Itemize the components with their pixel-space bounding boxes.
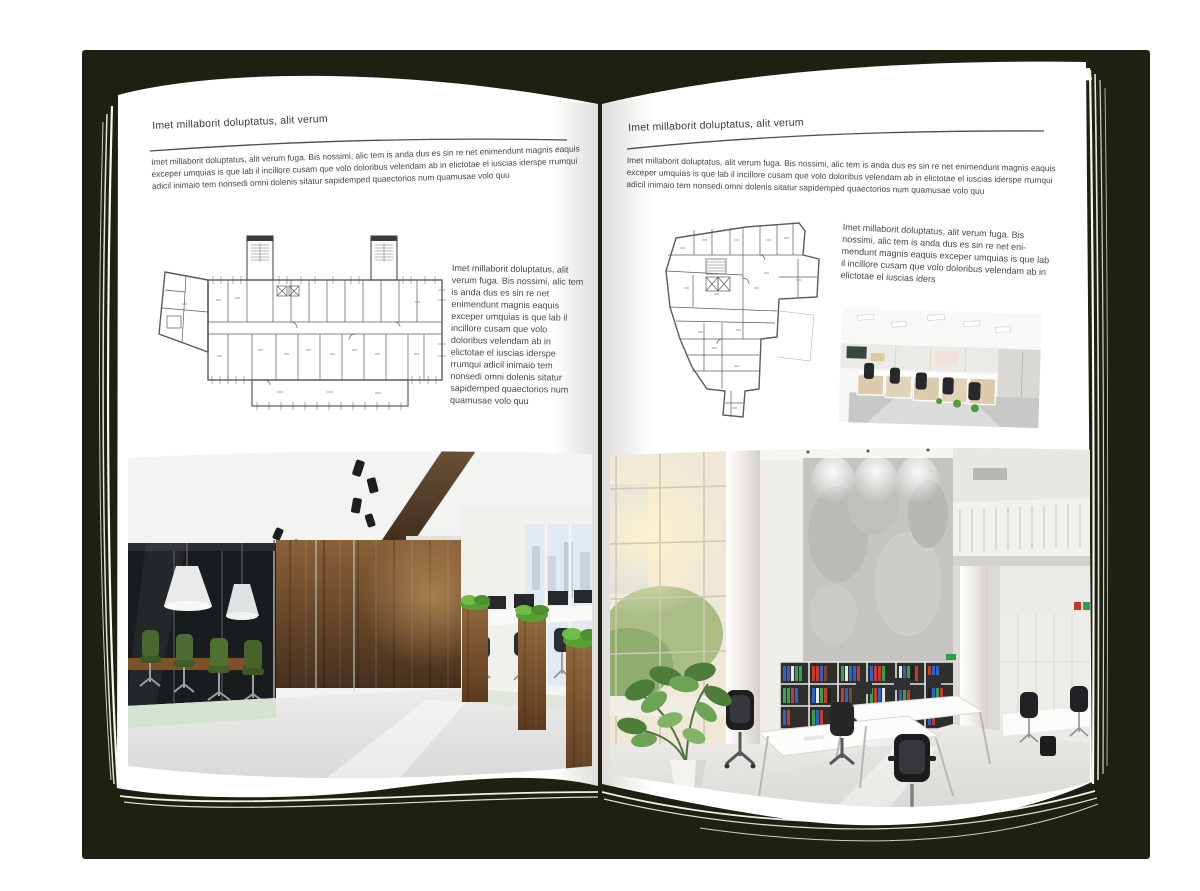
exit-sign	[946, 654, 956, 660]
page-stack-right	[1090, 70, 1108, 784]
left-floor-plan-figure	[155, 228, 457, 420]
left-office-photo	[126, 448, 594, 794]
plan-room-labels	[182, 298, 420, 393]
plan-left-wing	[159, 272, 208, 352]
safety-sign-green	[1083, 602, 1090, 610]
plan-balcony	[777, 311, 814, 361]
plan-stair-towers	[247, 236, 397, 280]
concrete-feature-wall	[803, 456, 953, 662]
ceiling-lights	[841, 308, 1042, 350]
plan-outline	[666, 223, 819, 417]
right-floor-plan-figure	[646, 218, 842, 424]
plan-main-block	[208, 280, 442, 406]
magazine-mockup: Imet millaborit doluptatus, alit verum I…	[0, 0, 1200, 891]
glass-meeting-room	[126, 540, 276, 708]
plan-room-labels	[680, 238, 801, 408]
plan-stair-core	[706, 259, 730, 291]
mezzanine	[953, 444, 1092, 566]
plan-interior	[666, 223, 817, 417]
left-page-caption: Imet millaborit doluptatus, alit verum f…	[450, 263, 585, 408]
plan-door-arcs	[717, 255, 765, 344]
right-office-photo-large	[608, 444, 1092, 836]
safety-sign-red	[1074, 602, 1081, 610]
right-page-caption: Imet millaborit doluptatus, alit verum f…	[840, 222, 1051, 291]
page-stack-left	[99, 106, 118, 788]
right-office-photo-small	[838, 308, 1041, 428]
